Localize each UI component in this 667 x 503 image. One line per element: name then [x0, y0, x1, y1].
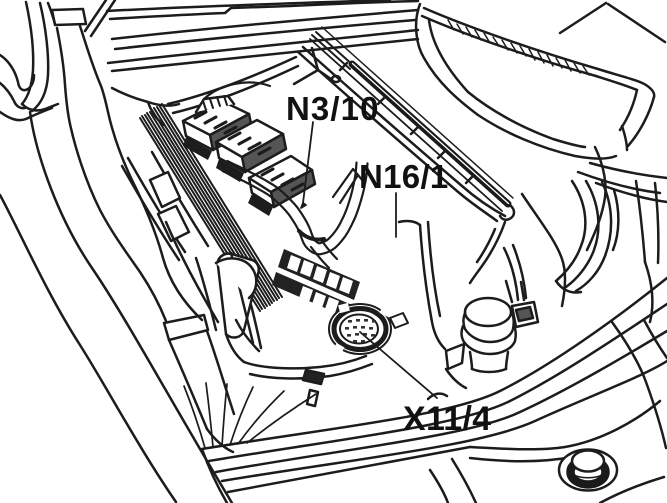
svg-text:N3/10: N3/10	[286, 90, 380, 127]
svg-text:N16/1: N16/1	[359, 158, 449, 195]
svg-text:X11/4: X11/4	[403, 400, 491, 438]
